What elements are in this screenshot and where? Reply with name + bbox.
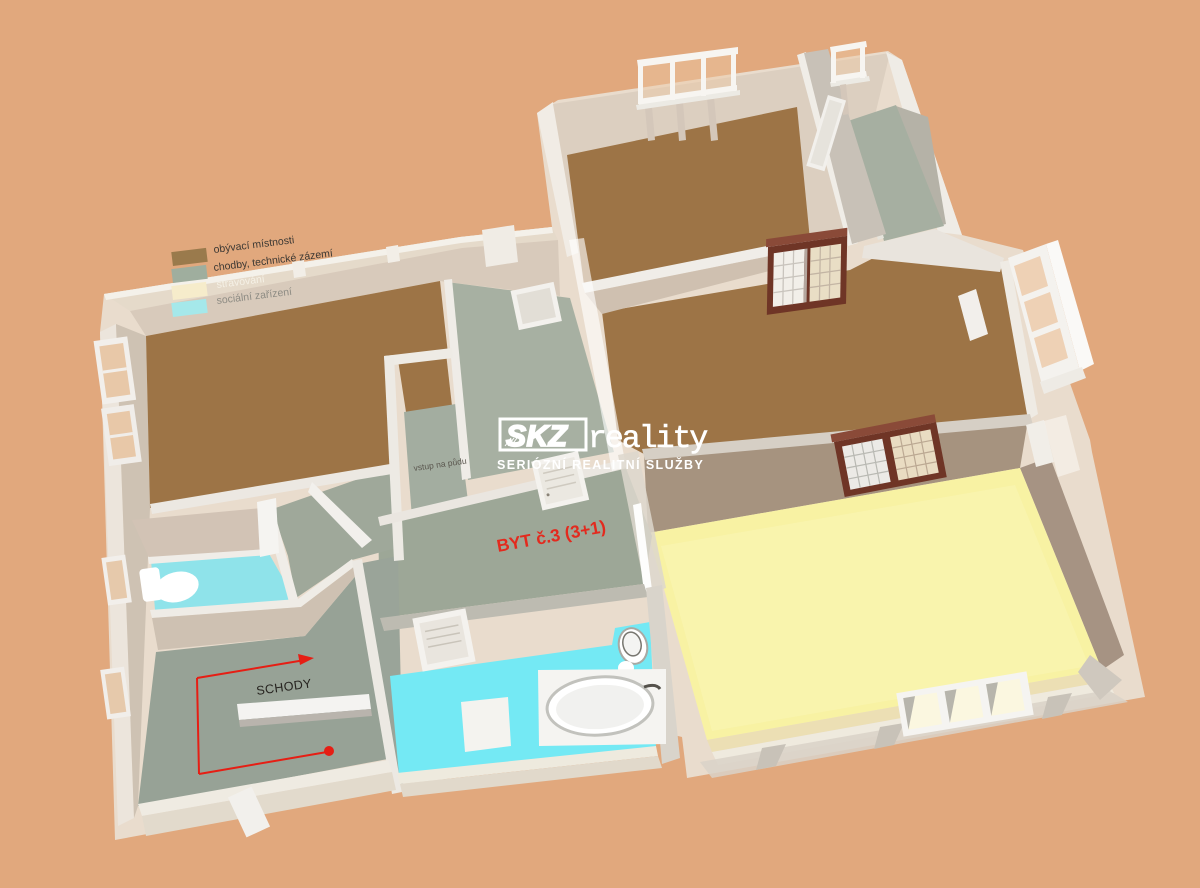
- svg-text:SKZ: SKZ: [506, 420, 569, 453]
- svg-text:SERIÓZNÍ REALITNÍ SLUŽBY: SERIÓZNÍ REALITNÍ SLUŽBY: [497, 457, 704, 472]
- svg-text:reality: reality: [588, 422, 707, 457]
